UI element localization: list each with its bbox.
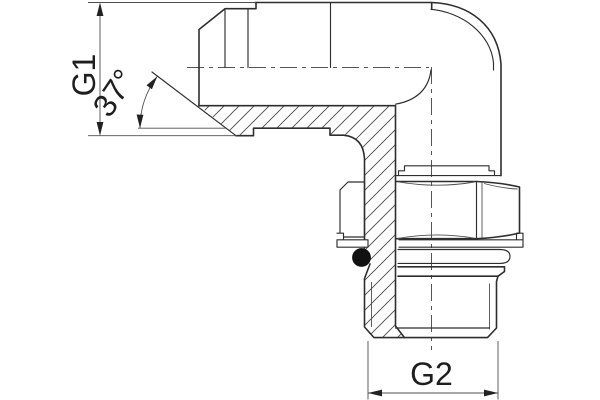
technical-drawing-canvas: G1 37° G2 [0, 0, 600, 400]
o-ring-section-dot [352, 248, 371, 267]
hex-chamfer-arcs [398, 182, 518, 239]
elbow-fitting-drawing: G1 37° G2 [0, 0, 600, 400]
locknut-section [340, 182, 365, 237]
bore-bend-curve [396, 70, 432, 104]
inner-corner-fillet [344, 135, 365, 248]
g2-arrow-left [368, 390, 382, 397]
g1-arrow-down [97, 122, 104, 136]
dim-g2: G2 [368, 341, 498, 400]
g2-label: G2 [410, 356, 453, 392]
inner-bend-arc [431, 9, 494, 70]
angle-arrow-bottom [137, 115, 144, 129]
angle-arrow-top [147, 76, 158, 89]
body-section-hatching [200, 106, 405, 338]
outer-bend-arc [432, 3, 501, 176]
elbow-body-outline [152, 3, 505, 338]
locknut-collar [396, 166, 501, 176]
flare-cone-line [152, 72, 236, 136]
dim-angle: 37° [85, 63, 226, 128]
thread-runout-lines [225, 3, 331, 68]
g2-arrow-right [484, 390, 498, 397]
g1-arrow-up [97, 3, 104, 17]
o-ring-external-band [398, 250, 510, 264]
hex-locknut [396, 182, 520, 239]
